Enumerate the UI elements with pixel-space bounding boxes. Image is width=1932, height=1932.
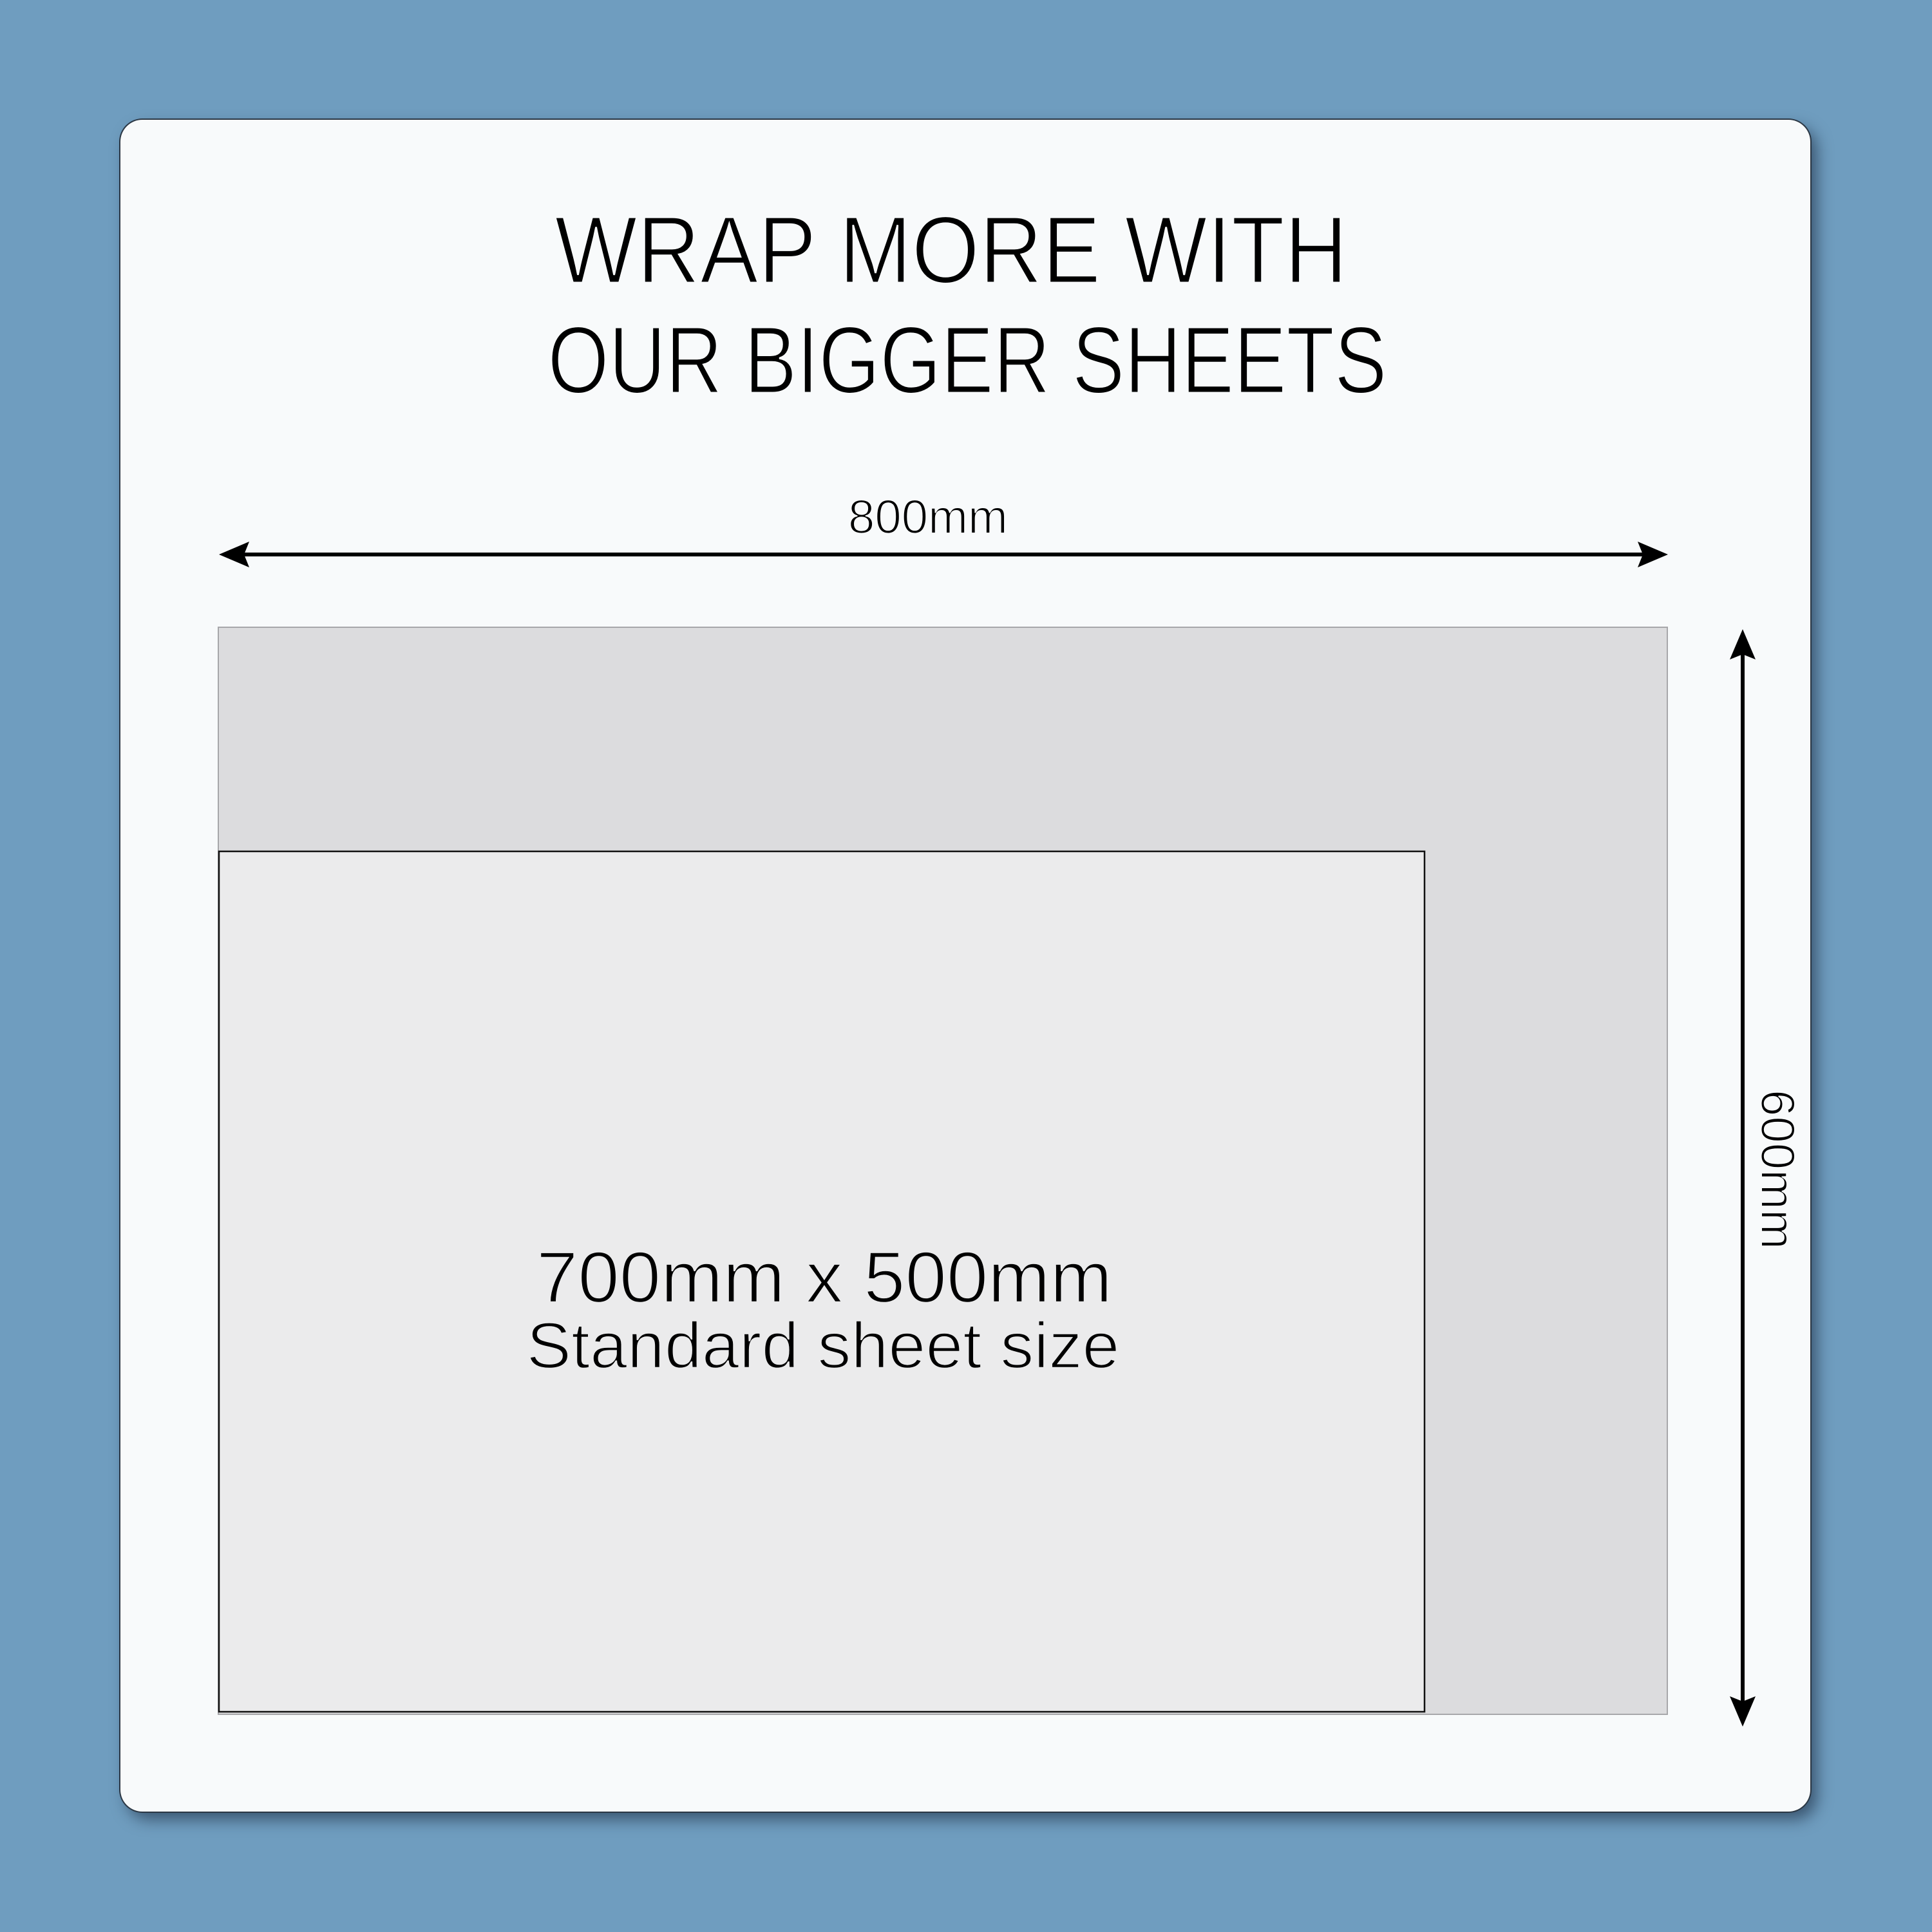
svg-text:Standard sheet size: Standard sheet size: [527, 1310, 1120, 1382]
svg-text:OUR BIGGER SHEETS: OUR BIGGER SHEETS: [548, 307, 1387, 413]
svg-text:600mm: 600mm: [1751, 1090, 1804, 1249]
svg-text:700mm x 500mm: 700mm x 500mm: [536, 1237, 1112, 1318]
svg-text:800mm: 800mm: [848, 490, 1008, 544]
svg-text:WRAP MORE WITH: WRAP MORE WITH: [555, 197, 1348, 303]
